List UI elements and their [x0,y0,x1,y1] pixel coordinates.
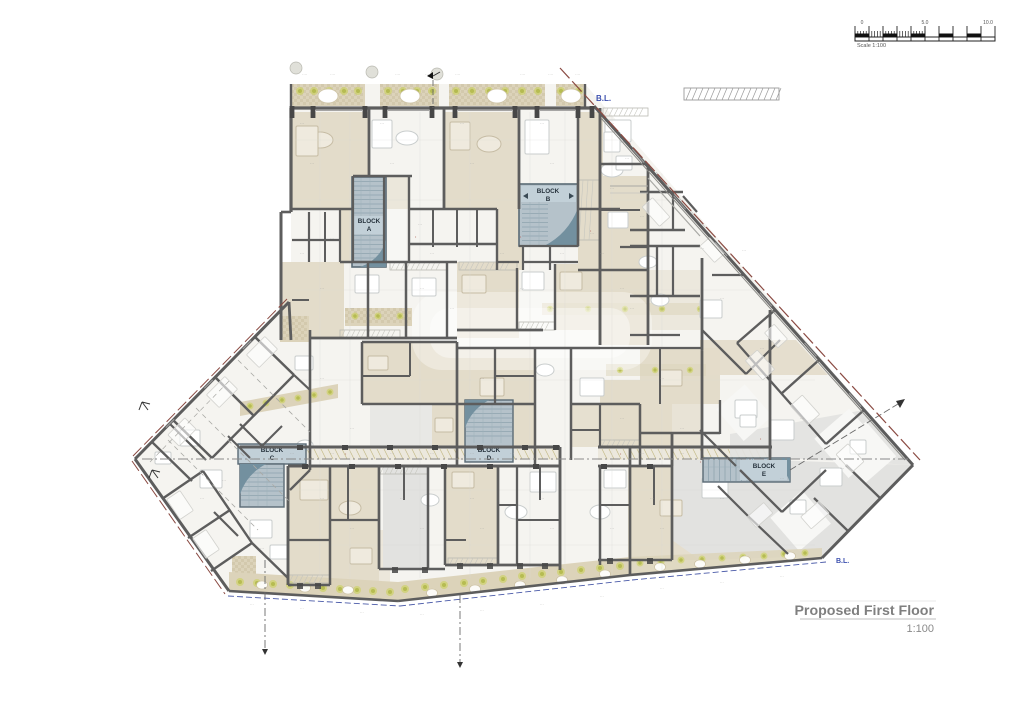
svg-text:···: ··· [720,296,724,301]
svg-text:···: ··· [185,438,189,443]
svg-text:···: ··· [350,426,354,431]
svg-text:···: ··· [330,236,334,241]
svg-text:····: ···· [548,72,553,77]
svg-text:···: ··· [700,246,704,251]
svg-text:···: ··· [680,451,684,456]
svg-text:···: ··· [290,451,294,456]
svg-text:···: ··· [660,376,664,381]
svg-text:···: ··· [550,161,554,166]
svg-text:···: ··· [480,376,484,381]
svg-text:···: ··· [320,496,324,501]
svg-text:···: ··· [480,526,484,531]
svg-text:C: C [270,455,275,462]
svg-text:A: A [367,226,372,233]
svg-text:···: ··· [720,496,724,501]
svg-text:···: ··· [430,251,434,256]
svg-text:···: ··· [400,496,404,501]
svg-text:BLOCK: BLOCK [358,218,381,225]
svg-text:···: ··· [760,346,764,351]
svg-text:···: ··· [630,306,634,311]
svg-text:···: ··· [800,416,804,421]
svg-text:···: ··· [320,376,324,381]
svg-text:···: ··· [500,251,504,256]
svg-text:···: ··· [260,546,264,551]
svg-text:···: ··· [420,613,424,617]
svg-text:···: ··· [840,466,844,471]
svg-text:···: ··· [390,161,394,166]
svg-text:···: ··· [390,451,394,456]
svg-text:····: ···· [395,72,400,77]
svg-text:BLOCK: BLOCK [753,463,776,470]
svg-text:···: ··· [510,451,514,456]
svg-text:E: E [762,471,766,478]
svg-text:10.0: 10.0 [983,20,993,26]
svg-text:···: ··· [720,581,724,585]
svg-text:D: D [487,455,492,462]
svg-text:···: ··· [480,609,484,613]
svg-text:···: ··· [700,348,704,353]
svg-text:···: ··· [300,607,304,611]
svg-text:···: ··· [620,416,624,421]
svg-text:···: ··· [550,306,554,311]
svg-text:···: ··· [380,121,384,126]
svg-text:···: ··· [660,526,664,531]
svg-text:···: ··· [420,286,424,291]
svg-text:···: ··· [310,161,314,166]
svg-text:···: ··· [350,306,354,311]
svg-text:···: ··· [640,214,644,219]
svg-text:0: 0 [861,20,864,26]
svg-text:···: ··· [540,496,544,501]
svg-text:···: ··· [250,456,254,461]
svg-text:BLOCK: BLOCK [537,188,560,195]
svg-text:···: ··· [610,121,614,126]
svg-text:····: ···· [302,72,307,77]
svg-text:···: ··· [450,306,454,311]
svg-text:···: ··· [680,426,684,431]
svg-text:1:100: 1:100 [906,623,934,635]
svg-text:···: ··· [650,496,654,501]
svg-text:···: ··· [470,451,474,456]
svg-text:···: ··· [360,611,364,615]
svg-text:···: ··· [640,451,644,456]
svg-text:···: ··· [470,161,474,166]
svg-text:···: ··· [320,286,324,291]
svg-text:B.L.: B.L. [596,94,611,103]
svg-text:···: ··· [418,222,422,227]
svg-text:····: ···· [425,72,430,77]
svg-text:····: ···· [455,72,460,77]
svg-text:···: ··· [560,251,564,256]
svg-text:B.L.: B.L. [836,558,849,565]
svg-text:····: ···· [330,72,335,77]
svg-text:···: ··· [600,595,604,599]
svg-text:···: ··· [620,286,624,291]
svg-text:···: ··· [540,603,544,607]
svg-text:···: ··· [350,526,354,531]
svg-text:···: ··· [600,251,604,256]
svg-text:···: ··· [250,603,254,607]
svg-text:···: ··· [780,476,784,481]
svg-text:···: ··· [520,286,524,291]
svg-text:···: ··· [420,526,424,531]
svg-text:···: ··· [300,251,304,256]
svg-text:···: ··· [780,575,784,579]
svg-text:···: ··· [610,186,614,191]
svg-text:····: ···· [520,72,525,77]
svg-text:···: ··· [300,121,304,126]
svg-text:5.0: 5.0 [922,20,929,26]
svg-text:···: ··· [460,121,464,126]
svg-text:···: ··· [660,587,664,591]
svg-text:···: ··· [550,526,554,531]
svg-text:B: B [546,196,551,203]
svg-text:···: ··· [330,451,334,456]
svg-text:···: ··· [500,426,504,431]
svg-text:···: ··· [222,478,226,483]
svg-text:···: ··· [625,156,629,161]
svg-text:···: ··· [665,191,669,196]
svg-text:···: ··· [430,451,434,456]
svg-text:···: ··· [540,121,544,126]
svg-text:Scale 1:100: Scale 1:100 [857,43,886,49]
svg-text:···: ··· [470,496,474,501]
svg-text:···: ··· [610,526,614,531]
svg-text:···: ··· [200,496,204,501]
svg-text:···: ··· [742,248,746,253]
svg-text:Proposed First Floor: Proposed First Floor [794,603,934,619]
svg-text:····: ···· [575,72,580,77]
